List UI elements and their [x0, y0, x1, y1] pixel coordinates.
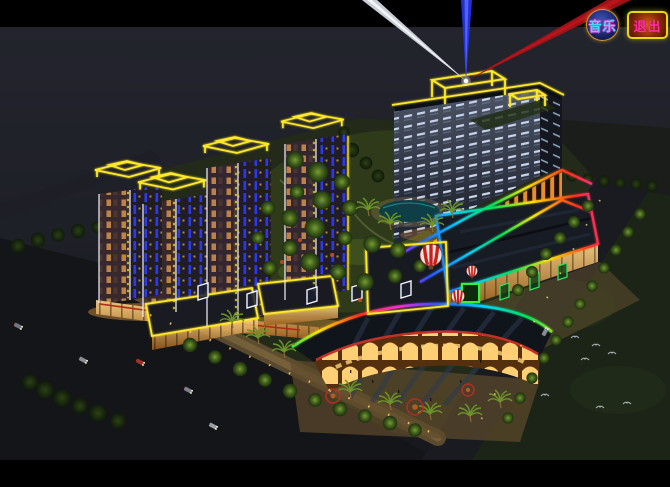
pond [371, 197, 447, 227]
music-button[interactable]: 音乐 [586, 9, 619, 41]
green-neon-sign [462, 284, 479, 302]
letterbox-bottom [0, 460, 670, 487]
exit-button[interactable]: 退出 [627, 11, 668, 39]
presentation-stage: 音乐 退出 [0, 0, 670, 487]
night-rendering-scene [0, 0, 670, 487]
